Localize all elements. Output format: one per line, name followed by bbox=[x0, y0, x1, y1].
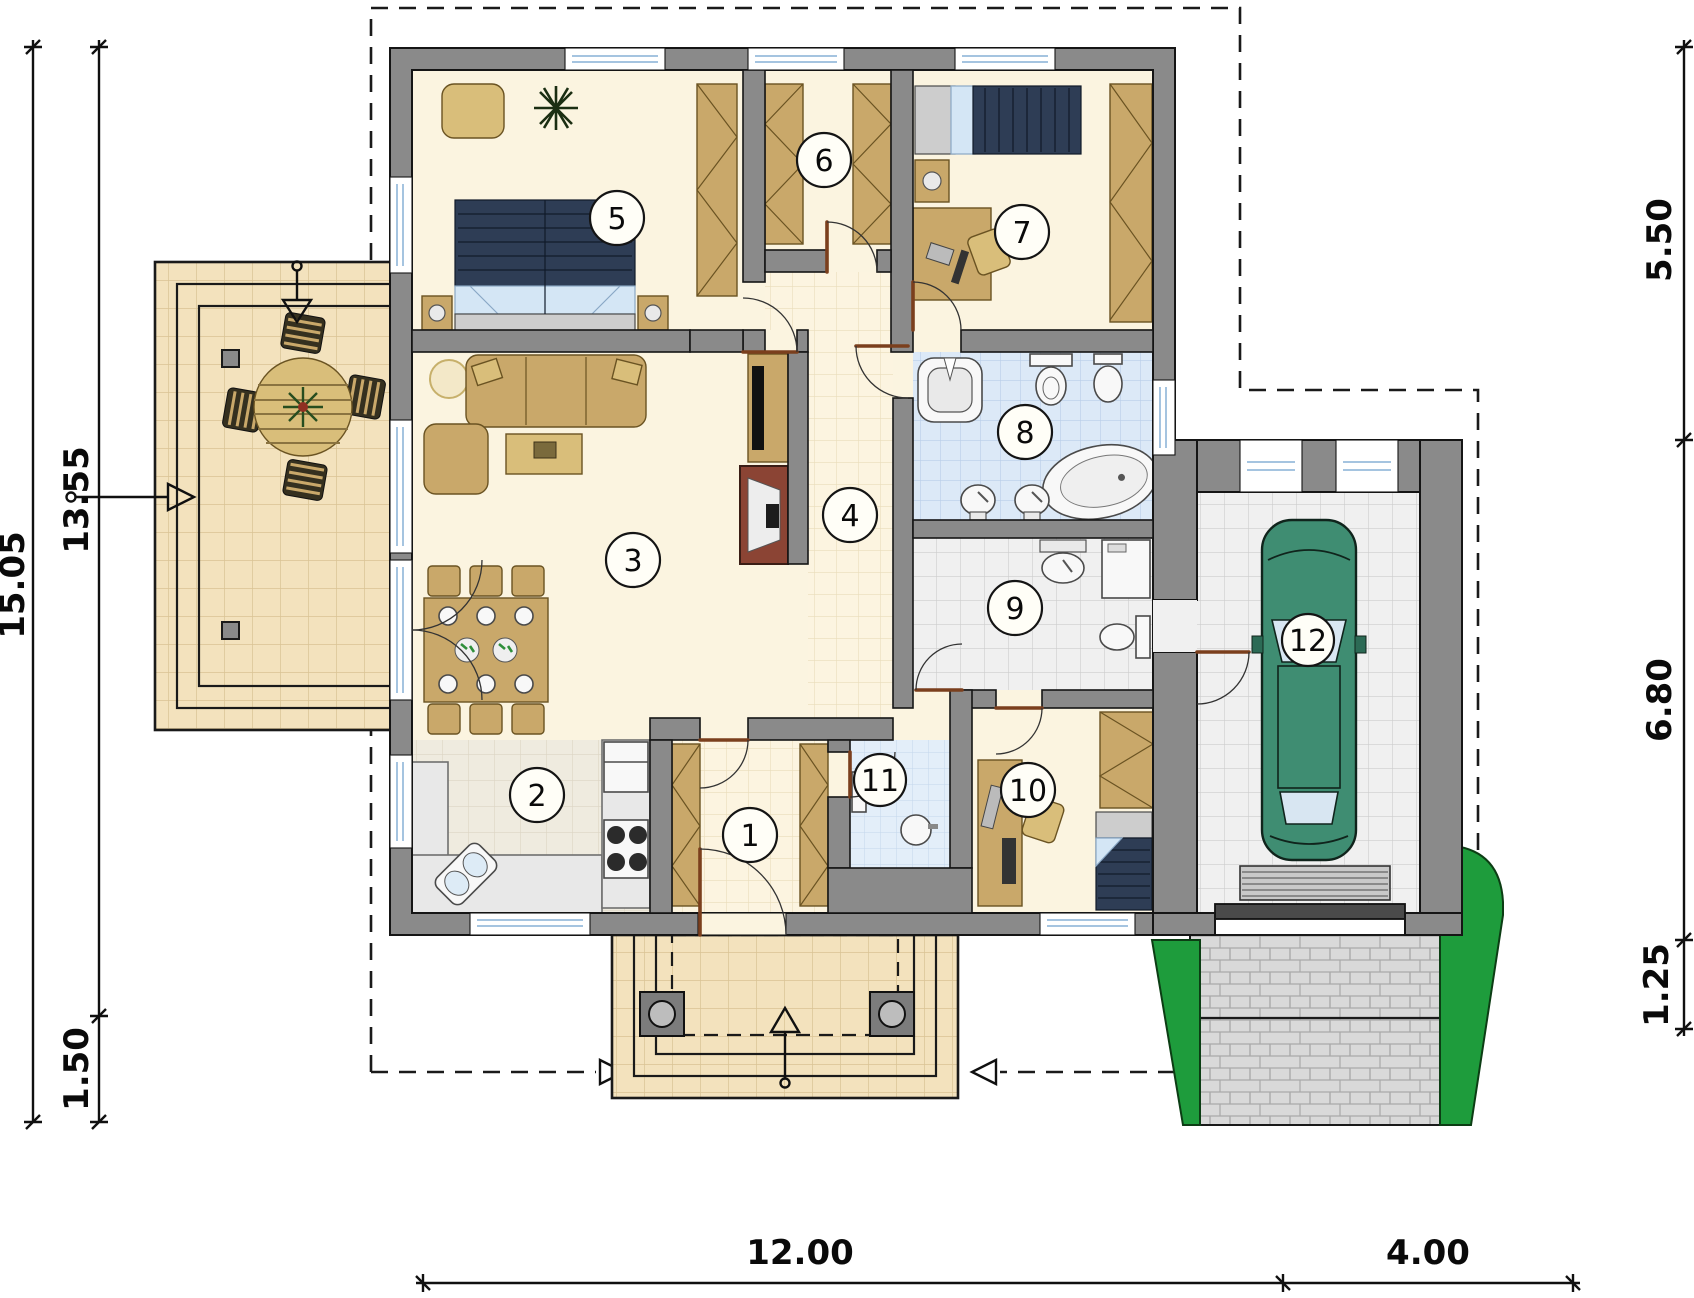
svg-text:2: 2 bbox=[527, 779, 546, 814]
fridge bbox=[604, 742, 648, 792]
wardrobe bbox=[1110, 84, 1152, 322]
room-label-1: 1 bbox=[723, 808, 777, 862]
svg-text:7: 7 bbox=[1012, 216, 1031, 251]
svg-text:1: 1 bbox=[740, 819, 759, 854]
shrub-left bbox=[1152, 940, 1200, 1125]
nightstand bbox=[422, 296, 452, 330]
window bbox=[748, 48, 844, 70]
dining-chair bbox=[470, 704, 502, 734]
car bbox=[1252, 520, 1366, 860]
room-label-4: 4 bbox=[823, 488, 877, 542]
nightstand bbox=[915, 160, 949, 202]
wardrobe bbox=[697, 84, 737, 296]
svg-text:6: 6 bbox=[814, 144, 833, 179]
window bbox=[1240, 440, 1302, 492]
sofa bbox=[466, 355, 646, 427]
single-bed bbox=[1096, 812, 1152, 910]
dim-right-middle: 6.80 bbox=[1640, 658, 1680, 742]
washing-mach​ine bbox=[1102, 540, 1150, 598]
entrance-porch bbox=[612, 935, 958, 1098]
window bbox=[470, 913, 590, 935]
front-door-opening bbox=[698, 913, 786, 935]
terrace-post bbox=[222, 350, 239, 367]
window bbox=[390, 177, 412, 273]
small-sink bbox=[901, 815, 931, 845]
dining-chair bbox=[512, 704, 544, 734]
tv-cabinet bbox=[748, 354, 788, 462]
dining-chair bbox=[428, 566, 460, 596]
porch-column bbox=[870, 992, 914, 1036]
closet bbox=[672, 744, 700, 906]
dim-left-outer: 15.05 bbox=[0, 531, 33, 639]
stove bbox=[604, 820, 648, 878]
room-label-11: 11 bbox=[854, 754, 906, 806]
dim-right-top: 5.50 bbox=[1640, 198, 1680, 282]
room-label-5: 5 bbox=[590, 191, 644, 245]
window bbox=[390, 755, 412, 848]
dim-bottom-garage: 4.00 bbox=[1386, 1233, 1470, 1273]
svg-text:8: 8 bbox=[1015, 416, 1034, 451]
window bbox=[565, 48, 665, 70]
room-label-9: 9 bbox=[988, 581, 1042, 635]
window bbox=[1336, 440, 1398, 492]
terrace-post bbox=[222, 622, 239, 639]
room-label-8: 8 bbox=[998, 405, 1052, 459]
coffee-table bbox=[506, 434, 582, 474]
svg-text:5: 5 bbox=[607, 202, 626, 237]
dining-chair bbox=[512, 566, 544, 596]
sink bbox=[1040, 540, 1086, 583]
plant-icon bbox=[534, 86, 578, 130]
svg-text:3: 3 bbox=[623, 544, 642, 579]
window bbox=[955, 48, 1055, 70]
room-label-12: 12 bbox=[1282, 614, 1334, 666]
garage-door-opening bbox=[1153, 600, 1197, 652]
terrace bbox=[67, 262, 401, 731]
bed-pillow bbox=[915, 86, 955, 154]
armchair bbox=[442, 84, 504, 138]
window bbox=[390, 420, 412, 553]
svg-text:4: 4 bbox=[840, 499, 859, 534]
terrace-door-opening bbox=[390, 560, 412, 700]
terrace-chair bbox=[282, 459, 328, 501]
armchair bbox=[424, 424, 488, 494]
garage-door-threshold bbox=[1215, 904, 1405, 919]
floor-lamp bbox=[430, 360, 468, 398]
dim-left-bottom: 1.50 bbox=[57, 1027, 97, 1111]
room-label-7: 7 bbox=[995, 205, 1049, 259]
porch-column bbox=[640, 992, 684, 1036]
dining-table-set bbox=[424, 566, 548, 734]
nightstand bbox=[638, 296, 668, 330]
floor-plan-page: 1 2 3 4 5 6 7 8 9 10 11 12 15.05 13.55 1… bbox=[0, 0, 1694, 1298]
svg-text:12: 12 bbox=[1289, 624, 1327, 659]
svg-text:10: 10 bbox=[1009, 774, 1047, 809]
room-label-3: 3 bbox=[606, 533, 660, 587]
window bbox=[1153, 380, 1175, 455]
table-plant-icon bbox=[283, 387, 323, 427]
dim-right-bottom: 1.25 bbox=[1637, 943, 1677, 1027]
terrace-chair bbox=[280, 312, 326, 354]
closet bbox=[800, 744, 828, 906]
section-arrow-left-icon bbox=[972, 1060, 996, 1084]
window bbox=[1040, 913, 1135, 935]
wardrobe bbox=[1100, 712, 1153, 808]
room-label-10: 10 bbox=[1001, 763, 1055, 817]
room-label-6: 6 bbox=[797, 133, 851, 187]
hallway-floor bbox=[765, 272, 891, 330]
dining-chair bbox=[428, 704, 460, 734]
bidet bbox=[1094, 354, 1122, 402]
fireplace bbox=[740, 466, 788, 564]
dim-bottom-main: 12.00 bbox=[746, 1233, 854, 1273]
wardrobe bbox=[853, 84, 891, 244]
svg-text:9: 9 bbox=[1005, 592, 1024, 627]
garage-door-area bbox=[1215, 866, 1405, 919]
room-label-2: 2 bbox=[510, 768, 564, 822]
floor-plan-canvas: 1 2 3 4 5 6 7 8 9 10 11 12 15.05 13.55 1… bbox=[0, 0, 1694, 1298]
svg-text:11: 11 bbox=[861, 764, 899, 799]
dim-left-inner: 13.55 bbox=[57, 446, 97, 554]
